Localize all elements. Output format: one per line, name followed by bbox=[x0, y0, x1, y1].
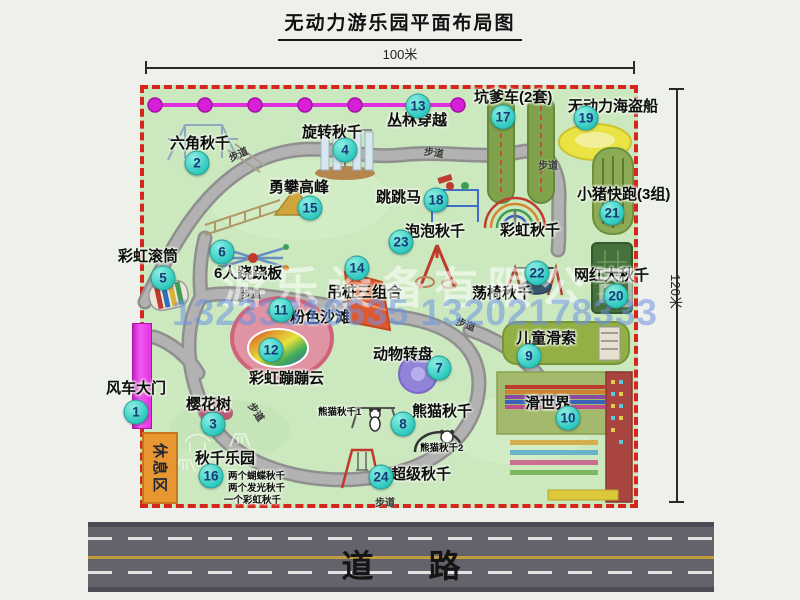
footpath-label: 步道 bbox=[538, 157, 558, 172]
road: 道 路 bbox=[88, 522, 714, 592]
marker-1: 1 bbox=[124, 400, 149, 425]
marker-6: 6 bbox=[210, 240, 235, 265]
attraction-label: 六角秋千 bbox=[170, 132, 230, 153]
marker-19: 19 bbox=[574, 106, 599, 131]
marker-21: 21 bbox=[600, 201, 625, 226]
page-title: 无动力游乐园平面布局图 bbox=[278, 8, 521, 41]
attraction-label: 小猪快跑(3组) bbox=[577, 183, 670, 204]
dimension-right-tick-bottom bbox=[669, 501, 684, 503]
attraction-label: 超级秋千 bbox=[391, 463, 451, 484]
attraction-label: 旋转秋千 bbox=[302, 121, 362, 142]
park-layout-plan: { "title": "无动力游乐园平面布局图", "dimensions": … bbox=[0, 0, 800, 600]
attraction-label: 风车大门 bbox=[106, 377, 166, 398]
attraction-label: 彩虹蹦蹦云 bbox=[249, 367, 324, 388]
marker-12: 12 bbox=[259, 338, 284, 363]
marker-3: 3 bbox=[201, 412, 226, 437]
attraction-label: 熊猫秋千 bbox=[412, 400, 472, 421]
attraction-label: 勇攀高峰 bbox=[269, 176, 329, 197]
marker-11: 11 bbox=[269, 298, 294, 323]
marker-16: 16 bbox=[199, 464, 224, 489]
dimension-top-line bbox=[145, 67, 635, 69]
attraction-label: 坑爹车(2套) bbox=[474, 86, 552, 107]
dimension-right-tick-top bbox=[669, 88, 684, 90]
attraction-label: 跳跳马 bbox=[376, 186, 421, 207]
marker-24: 24 bbox=[369, 465, 394, 490]
attraction-sub-label: 一个彩虹秋千 bbox=[224, 492, 281, 506]
dimension-top-tick-right bbox=[633, 61, 635, 74]
marker-5: 5 bbox=[151, 266, 176, 291]
attraction-sub-label: 熊猫秋千1 bbox=[318, 404, 361, 418]
attraction-label: 樱花树 bbox=[186, 393, 231, 414]
marker-2: 2 bbox=[185, 151, 210, 176]
road-dash-line-top bbox=[88, 537, 714, 540]
marker-14: 14 bbox=[345, 256, 370, 281]
marker-15: 15 bbox=[298, 196, 323, 221]
attraction-label: 彩虹滚筒 bbox=[118, 245, 178, 266]
footpath-label: 步道 bbox=[375, 494, 395, 509]
marker-17: 17 bbox=[491, 105, 516, 130]
watermark-phone: 13233816635 13202178333 bbox=[172, 292, 658, 334]
marker-10: 10 bbox=[556, 406, 581, 431]
marker-20: 20 bbox=[604, 284, 629, 309]
marker-18: 18 bbox=[424, 188, 449, 213]
marker-22: 22 bbox=[525, 261, 550, 286]
dimension-top-label: 100米 bbox=[370, 44, 430, 63]
marker-13: 13 bbox=[406, 94, 431, 119]
marker-23: 23 bbox=[389, 230, 414, 255]
marker-4: 4 bbox=[333, 138, 358, 163]
footpath-label: 步道 bbox=[423, 143, 445, 161]
rainbow-swing-label: 彩虹秋千 bbox=[500, 219, 560, 240]
marker-9: 9 bbox=[517, 344, 542, 369]
attraction-label: 动物转盘 bbox=[373, 343, 433, 364]
dimension-right-label: 120米 bbox=[667, 274, 686, 309]
marker-7: 7 bbox=[427, 356, 452, 381]
dimension-top-tick-left bbox=[145, 61, 147, 74]
road-label: 道 路 bbox=[88, 541, 714, 587]
attraction-sub-label: 熊猫秋千2 bbox=[420, 440, 463, 454]
attraction-label: 泡泡秋千 bbox=[405, 220, 465, 241]
rest-area: 休息区 bbox=[142, 432, 178, 504]
marker-8: 8 bbox=[391, 412, 416, 437]
rest-area-label: 休息区 bbox=[150, 442, 171, 493]
